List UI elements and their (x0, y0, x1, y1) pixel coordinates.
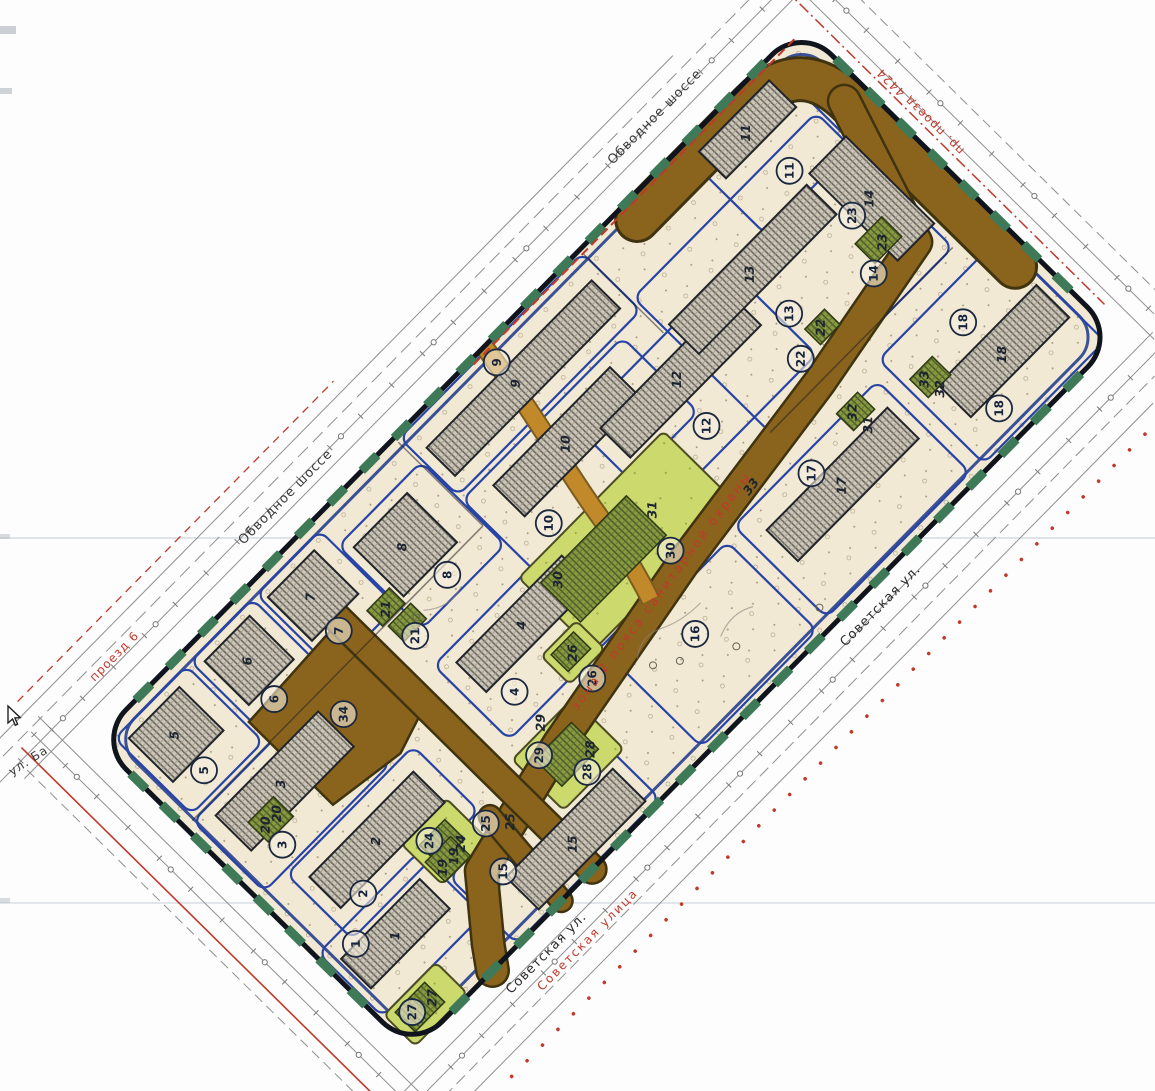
building-number: 28 (582, 740, 597, 758)
parcel-number: 34 (337, 706, 351, 723)
building-number: 14 (861, 190, 876, 208)
parcel-number: 18 (956, 314, 970, 331)
building-number: 3 (273, 779, 288, 788)
parcel-number: 10 (542, 515, 556, 532)
building-number: 12 (669, 371, 684, 389)
building-number: 15 (565, 835, 580, 853)
building-number: 33 (916, 370, 931, 388)
parcel-number: 29 (532, 747, 546, 764)
building-number: 1 (387, 931, 402, 940)
parcel-number: 14 (867, 265, 881, 282)
building-number: 17 (834, 477, 849, 495)
parcel-number: 5 (197, 766, 211, 774)
building-number: 18 (994, 346, 1009, 364)
building-number: 8 (394, 542, 409, 551)
building-number: 9 (508, 379, 523, 388)
building-number: 24 (453, 835, 468, 853)
parcel-number: 15 (496, 863, 510, 880)
building-number: 32 (932, 380, 947, 398)
parcel-number: 4 (508, 688, 522, 696)
parcel-number: 17 (804, 465, 818, 482)
parcel-number: 24 (422, 832, 436, 849)
building-number: 23 (874, 234, 889, 252)
building-number: 11 (738, 124, 753, 142)
parcel-number: 9 (490, 358, 504, 366)
building-number: 22 (813, 319, 828, 337)
parcel-number: 25 (479, 815, 493, 832)
building-number: 29 (533, 714, 548, 732)
parcel-number: 28 (580, 763, 594, 780)
parcel-number: 2 (356, 889, 370, 897)
parcel-number: 6 (267, 695, 281, 703)
plan-canvas: 1234567891011121314151617181821222324252… (0, 0, 1155, 1091)
parcel-number: 22 (794, 350, 808, 367)
parcel-number: 18 (992, 400, 1006, 417)
parcel-number: 13 (782, 305, 796, 322)
building-number: 6 (240, 656, 255, 665)
building-number: 31 (644, 501, 659, 519)
building-number: 26 (565, 644, 580, 662)
scanned-city-plan: 1234567891011121314151617181821222324252… (0, 0, 1155, 1091)
parcel-number: 30 (664, 542, 678, 559)
building-number: 31 (860, 416, 875, 434)
building-number: 5 (167, 730, 182, 739)
building-number: 13 (742, 266, 757, 284)
building-number: 27 (424, 989, 439, 1007)
parcel-number: 11 (783, 162, 797, 179)
building-number: 7 (303, 592, 318, 601)
parcel-number: 12 (699, 418, 713, 435)
building-number: 2 (368, 837, 383, 846)
parcel-number: 3 (275, 840, 289, 848)
parcel-number: 8 (440, 571, 454, 579)
building-number: 32 (845, 403, 860, 421)
parcel-number: 23 (845, 207, 859, 224)
building-number: 4 (514, 621, 529, 631)
parcel-number: 27 (405, 1004, 419, 1021)
parcel-number: 21 (408, 627, 422, 644)
building-number: 20 (269, 805, 284, 823)
building-number: 25 (502, 813, 517, 831)
building-number: 10 (558, 435, 573, 453)
parcel-number: 1 (349, 940, 363, 948)
parcel-number: 7 (332, 627, 346, 635)
parcel-number: 16 (688, 626, 702, 643)
building-number: 21 (378, 600, 393, 618)
building-number: 30 (550, 571, 565, 589)
